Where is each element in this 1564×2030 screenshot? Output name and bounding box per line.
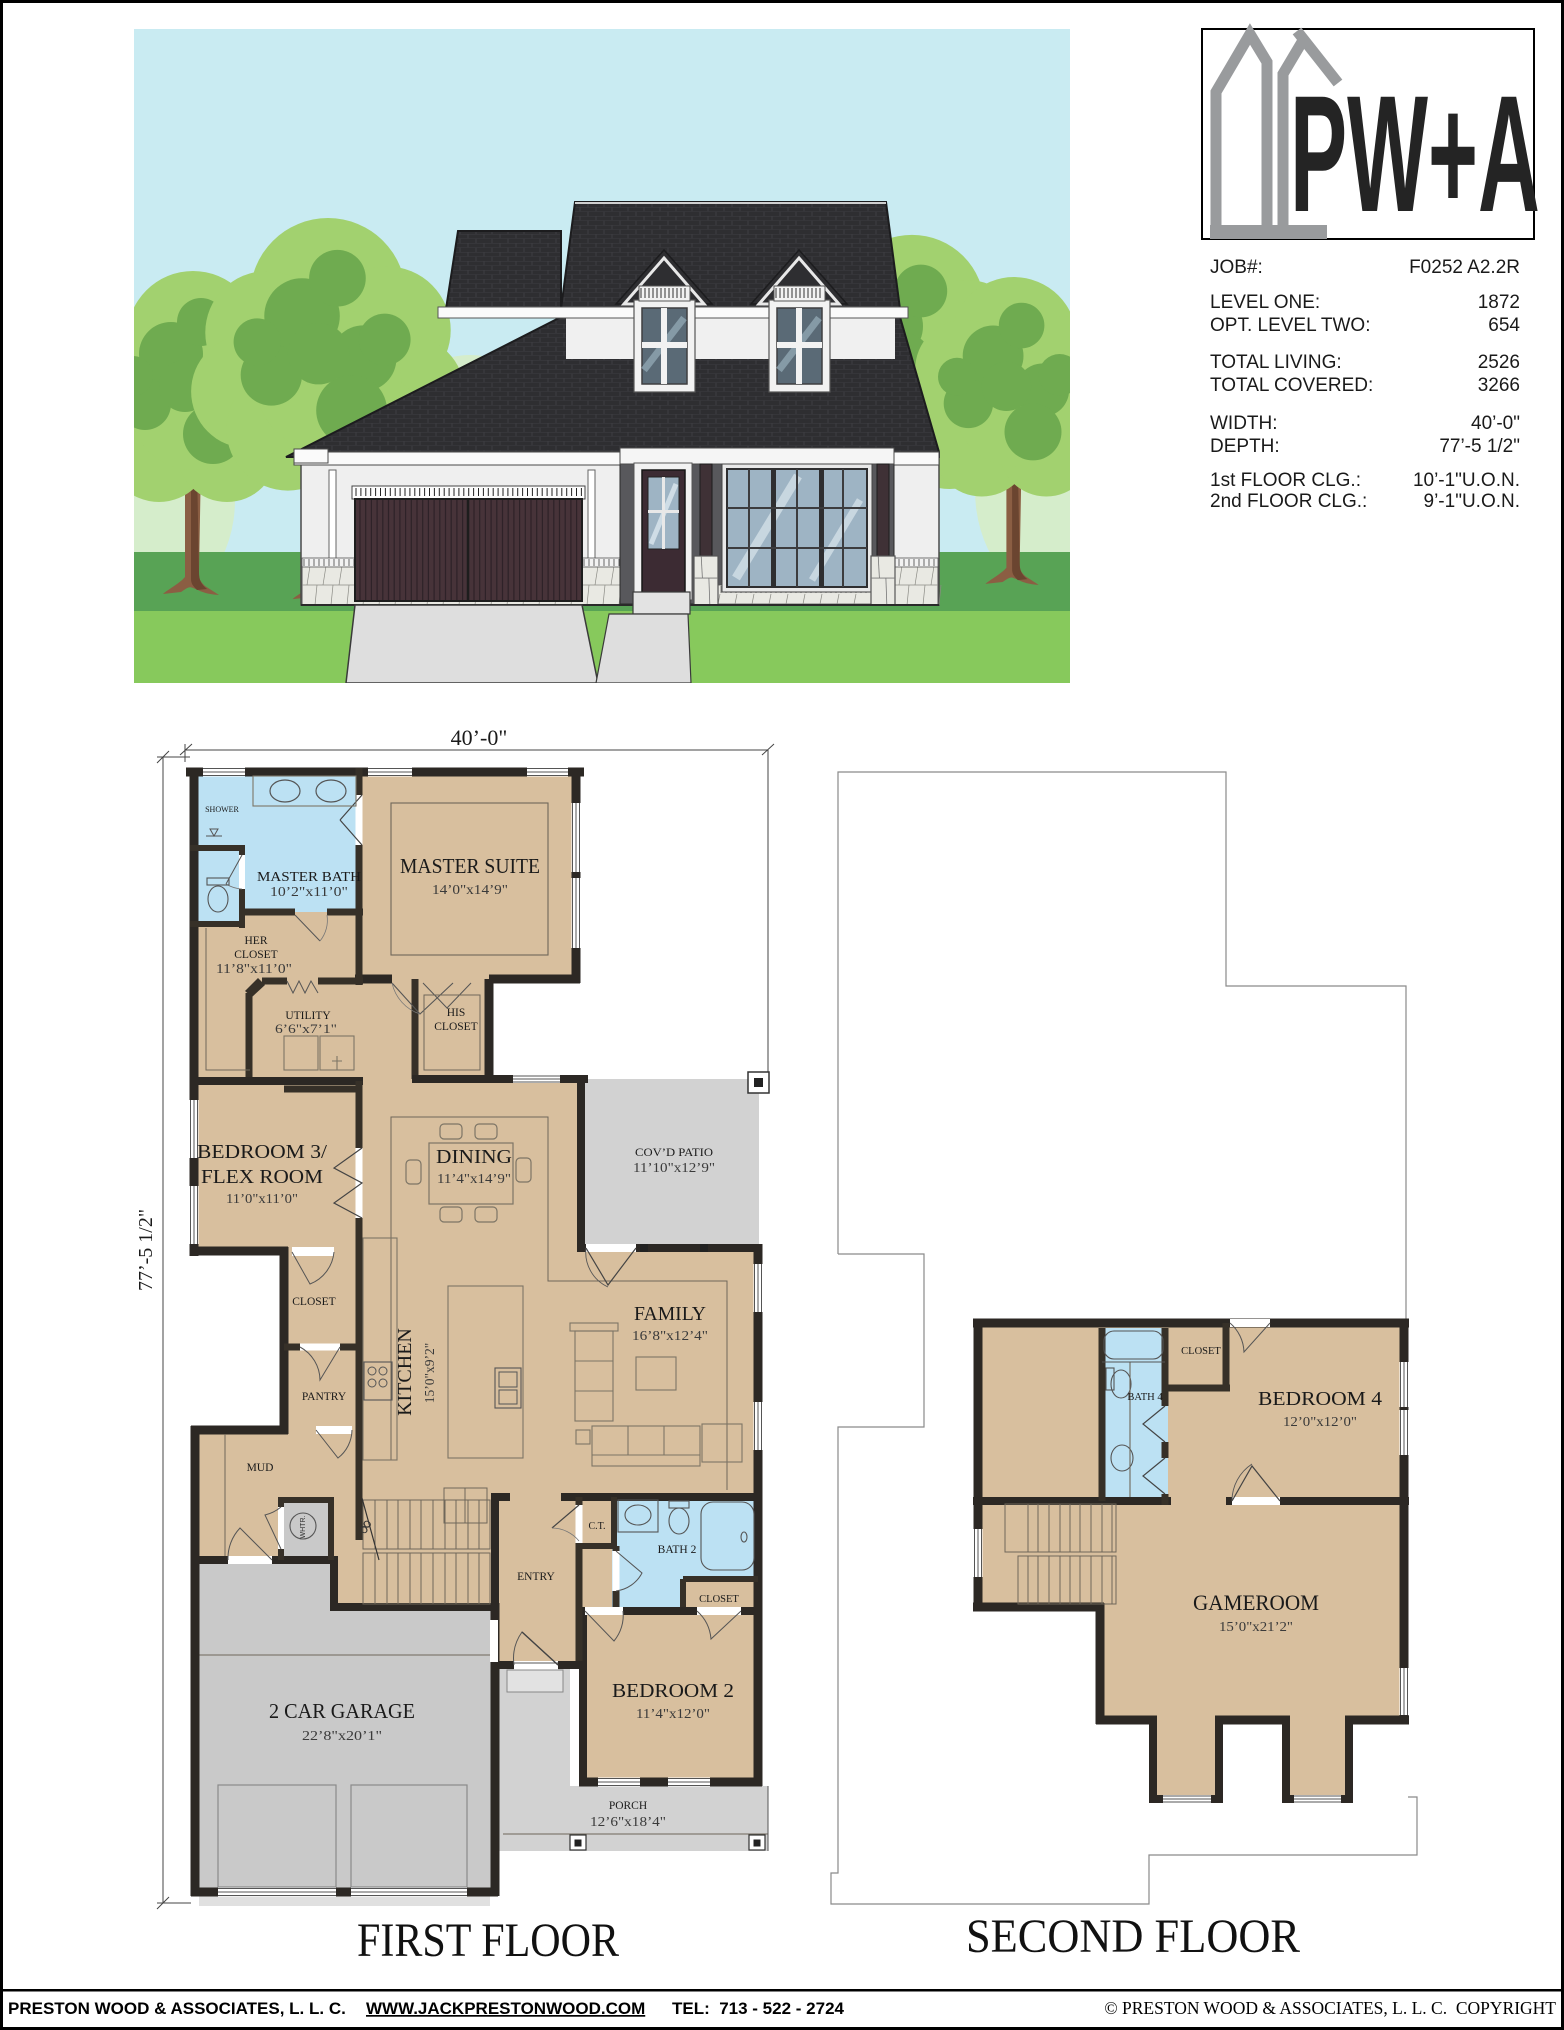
- svg-text:HIS: HIS: [447, 1007, 466, 1019]
- svg-text:OPT. LEVEL TWO:: OPT. LEVEL TWO:: [1210, 315, 1371, 336]
- svg-text:15’0"x21’2": 15’0"x21’2": [1219, 1619, 1293, 1634]
- svg-text:16’8"x12’4": 16’8"x12’4": [632, 1328, 708, 1343]
- svg-text:22’8"x20’1": 22’8"x20’1": [302, 1728, 382, 1743]
- svg-text:11’4"x12’0": 11’4"x12’0": [636, 1706, 710, 1721]
- svg-text:1st FLOOR CLG.:: 1st FLOOR CLG.:: [1210, 470, 1361, 491]
- svg-text:6’6"x7’1": 6’6"x7’1": [275, 1021, 337, 1036]
- svg-text:WHTR.: WHTR.: [300, 1515, 307, 1538]
- svg-text:BEDROOM 3/: BEDROOM 3/: [197, 1141, 327, 1163]
- svg-text:SECOND FLOOR: SECOND FLOOR: [966, 1910, 1300, 1963]
- svg-text:FAMILY: FAMILY: [634, 1303, 706, 1325]
- svg-text:DINING: DINING: [436, 1146, 512, 1168]
- svg-text:PW+A: PW+A: [1290, 60, 1540, 246]
- svg-text:9’-1"U.O.N.: 9’-1"U.O.N.: [1424, 491, 1520, 512]
- svg-text:TEL: 713 - 522 - 2724: TEL: 713 - 522 - 2724: [672, 1999, 845, 2018]
- svg-text:FLEX ROOM: FLEX ROOM: [201, 1166, 323, 1188]
- svg-text:HER: HER: [245, 935, 268, 947]
- svg-text:77’-5 1/2": 77’-5 1/2": [135, 1209, 157, 1291]
- svg-text:TOTAL COVERED:: TOTAL COVERED:: [1210, 375, 1373, 396]
- svg-text:11’0"x11’0": 11’0"x11’0": [226, 1191, 298, 1206]
- svg-text:CLOSET: CLOSET: [292, 1296, 335, 1308]
- svg-text:11’8"x11’0": 11’8"x11’0": [216, 961, 292, 976]
- svg-text:COV’D PATIO: COV’D PATIO: [635, 1145, 713, 1159]
- svg-text:PRESTON WOOD & ASSOCIATES, L.: PRESTON WOOD & ASSOCIATES, L. L. C.: [8, 1999, 346, 2018]
- svg-text:CLOSET: CLOSET: [234, 949, 277, 961]
- svg-text:11’10"x12’9": 11’10"x12’9": [633, 1160, 715, 1175]
- svg-text:12’6"x18’4": 12’6"x18’4": [590, 1814, 666, 1829]
- svg-text:12’0"x12’0": 12’0"x12’0": [1283, 1414, 1357, 1429]
- svg-text:WWW.JACKPRESTONWOOD.COM: WWW.JACKPRESTONWOOD.COM: [366, 1999, 645, 2018]
- svg-text:C.T.: C.T.: [588, 1521, 605, 1532]
- svg-text:KITCHEN: KITCHEN: [394, 1328, 416, 1416]
- svg-text:BEDROOM 4: BEDROOM 4: [1258, 1388, 1382, 1410]
- svg-text:F0252 A2.2R: F0252 A2.2R: [1409, 257, 1520, 278]
- svg-text:2526: 2526: [1478, 352, 1520, 373]
- svg-text:BATH 2: BATH 2: [658, 1544, 697, 1556]
- svg-text:PANTRY: PANTRY: [302, 1391, 347, 1403]
- svg-text:2 CAR GARAGE: 2 CAR GARAGE: [269, 1699, 415, 1723]
- svg-text:CLOSET: CLOSET: [1181, 1346, 1221, 1357]
- svg-text:TOTAL LIVING:: TOTAL LIVING:: [1210, 352, 1342, 373]
- svg-text:GAMEROOM: GAMEROOM: [1193, 1590, 1319, 1615]
- svg-text:© PRESTON WOOD & ASSOCIATES, L: © PRESTON WOOD & ASSOCIATES, L. L. C. CO…: [1104, 1998, 1556, 2018]
- svg-text:DEPTH:: DEPTH:: [1210, 436, 1280, 457]
- svg-text:FIRST FLOOR: FIRST FLOOR: [357, 1914, 619, 1967]
- svg-text:SHOWER: SHOWER: [205, 805, 239, 814]
- svg-text:2nd FLOOR CLG.:: 2nd FLOOR CLG.:: [1210, 491, 1367, 512]
- svg-text:MASTER SUITE: MASTER SUITE: [400, 854, 540, 878]
- svg-text:10’-1"U.O.N.: 10’-1"U.O.N.: [1413, 470, 1520, 491]
- svg-text:10’2"x11’0": 10’2"x11’0": [270, 884, 348, 899]
- svg-text:40’-0": 40’-0": [451, 725, 508, 750]
- svg-text:654: 654: [1488, 315, 1520, 336]
- svg-text:ENTRY: ENTRY: [517, 1571, 555, 1583]
- svg-text:LEVEL ONE:: LEVEL ONE:: [1210, 292, 1320, 313]
- svg-text:MASTER BATH: MASTER BATH: [257, 869, 361, 884]
- svg-text:PORCH: PORCH: [609, 1800, 647, 1812]
- svg-text:40’-0": 40’-0": [1471, 413, 1520, 434]
- svg-text:BEDROOM 2: BEDROOM 2: [612, 1680, 734, 1702]
- svg-text:BATH 4: BATH 4: [1127, 1392, 1163, 1403]
- svg-text:MUD: MUD: [247, 1462, 274, 1474]
- svg-text:CLOSET: CLOSET: [434, 1021, 477, 1033]
- svg-text:15’0"x9’2": 15’0"x9’2": [422, 1343, 437, 1404]
- svg-text:77’-5 1/2": 77’-5 1/2": [1439, 436, 1520, 457]
- svg-text:CLOSET: CLOSET: [699, 1594, 739, 1605]
- svg-text:11’4"x14’9": 11’4"x14’9": [437, 1171, 511, 1186]
- svg-text:JOB#:: JOB#:: [1210, 257, 1263, 278]
- svg-text:1872: 1872: [1478, 292, 1520, 313]
- svg-text:3266: 3266: [1478, 375, 1520, 396]
- svg-text:14’0"x14’9": 14’0"x14’9": [432, 882, 508, 897]
- svg-text:WIDTH:: WIDTH:: [1210, 413, 1278, 434]
